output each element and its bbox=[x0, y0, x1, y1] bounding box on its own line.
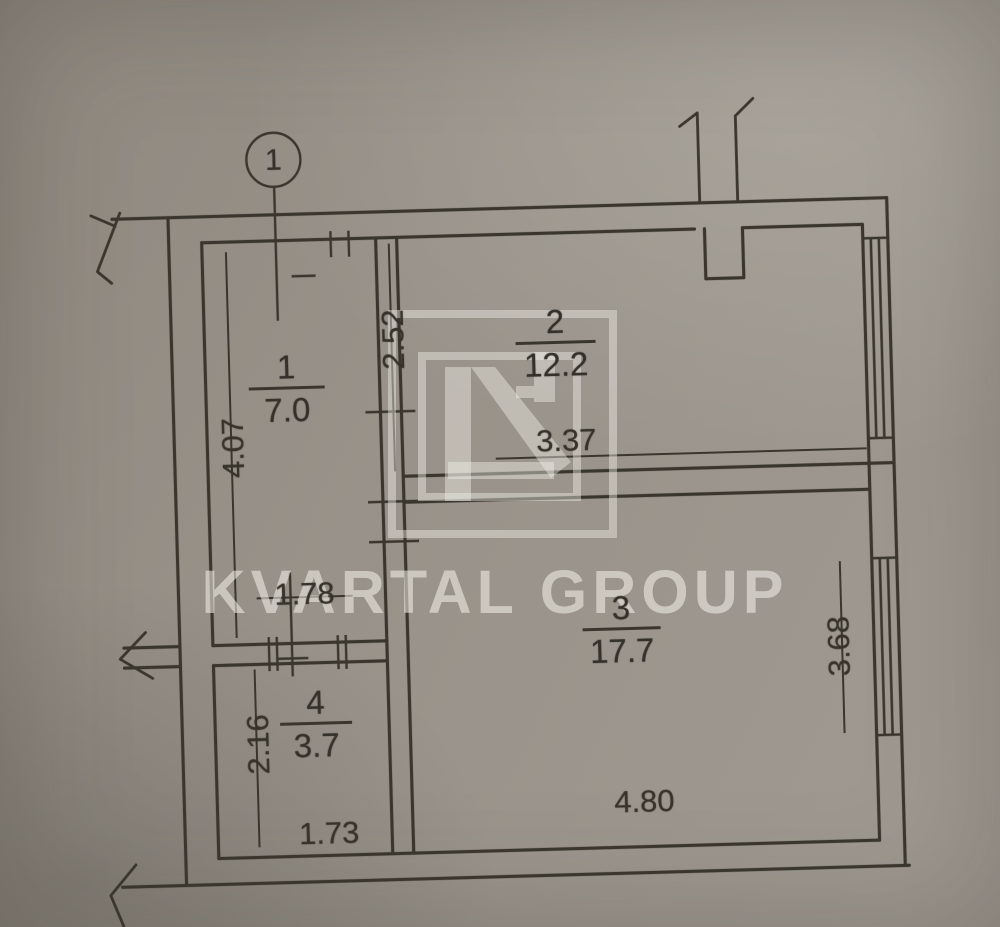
dim-room4-height: 2.16 bbox=[240, 714, 278, 775]
room-2-number: 2 bbox=[515, 304, 596, 339]
floor-plan-photo: KVARTAL GROUP 1 1 7.0 2 12.2 3 17.7 4 3.… bbox=[0, 0, 1000, 927]
dim-room2-height: 2.52 bbox=[375, 309, 413, 370]
room-3-area: 17.7 bbox=[583, 633, 662, 668]
dim-room4-width: 1.73 bbox=[299, 815, 360, 853]
room-1-number: 1 bbox=[248, 349, 325, 384]
room-label-1: 1 7.0 bbox=[248, 349, 326, 427]
dim-room3-height: 3.68 bbox=[820, 616, 858, 677]
dim-room1-width: 1.78 bbox=[274, 575, 335, 613]
room-4-area: 3.7 bbox=[280, 728, 353, 763]
room-label-4: 4 3.7 bbox=[279, 685, 353, 763]
plan-labels-layer: 1 1 7.0 2 12.2 3 17.7 4 3.7 4.07 1.78 2.… bbox=[0, 0, 1000, 927]
room-label-3: 3 17.7 bbox=[582, 590, 662, 668]
room-label-2: 2 12.2 bbox=[515, 304, 597, 382]
room-2-area: 12.2 bbox=[516, 347, 597, 382]
dim-room1-height: 4.07 bbox=[215, 417, 253, 478]
room-3-number: 3 bbox=[582, 590, 661, 625]
room-1-area: 7.0 bbox=[249, 392, 326, 427]
dim-room2-width: 3.37 bbox=[536, 422, 597, 460]
dim-room3-width: 4.80 bbox=[614, 783, 675, 821]
room-4-fraction-line bbox=[280, 721, 352, 726]
room-2-fraction-line bbox=[516, 340, 596, 345]
room-1-fraction-line bbox=[249, 385, 325, 390]
room-3-fraction-line bbox=[583, 626, 661, 631]
axis-marker-label: 1 bbox=[265, 144, 283, 178]
room-4-number: 4 bbox=[279, 685, 352, 720]
